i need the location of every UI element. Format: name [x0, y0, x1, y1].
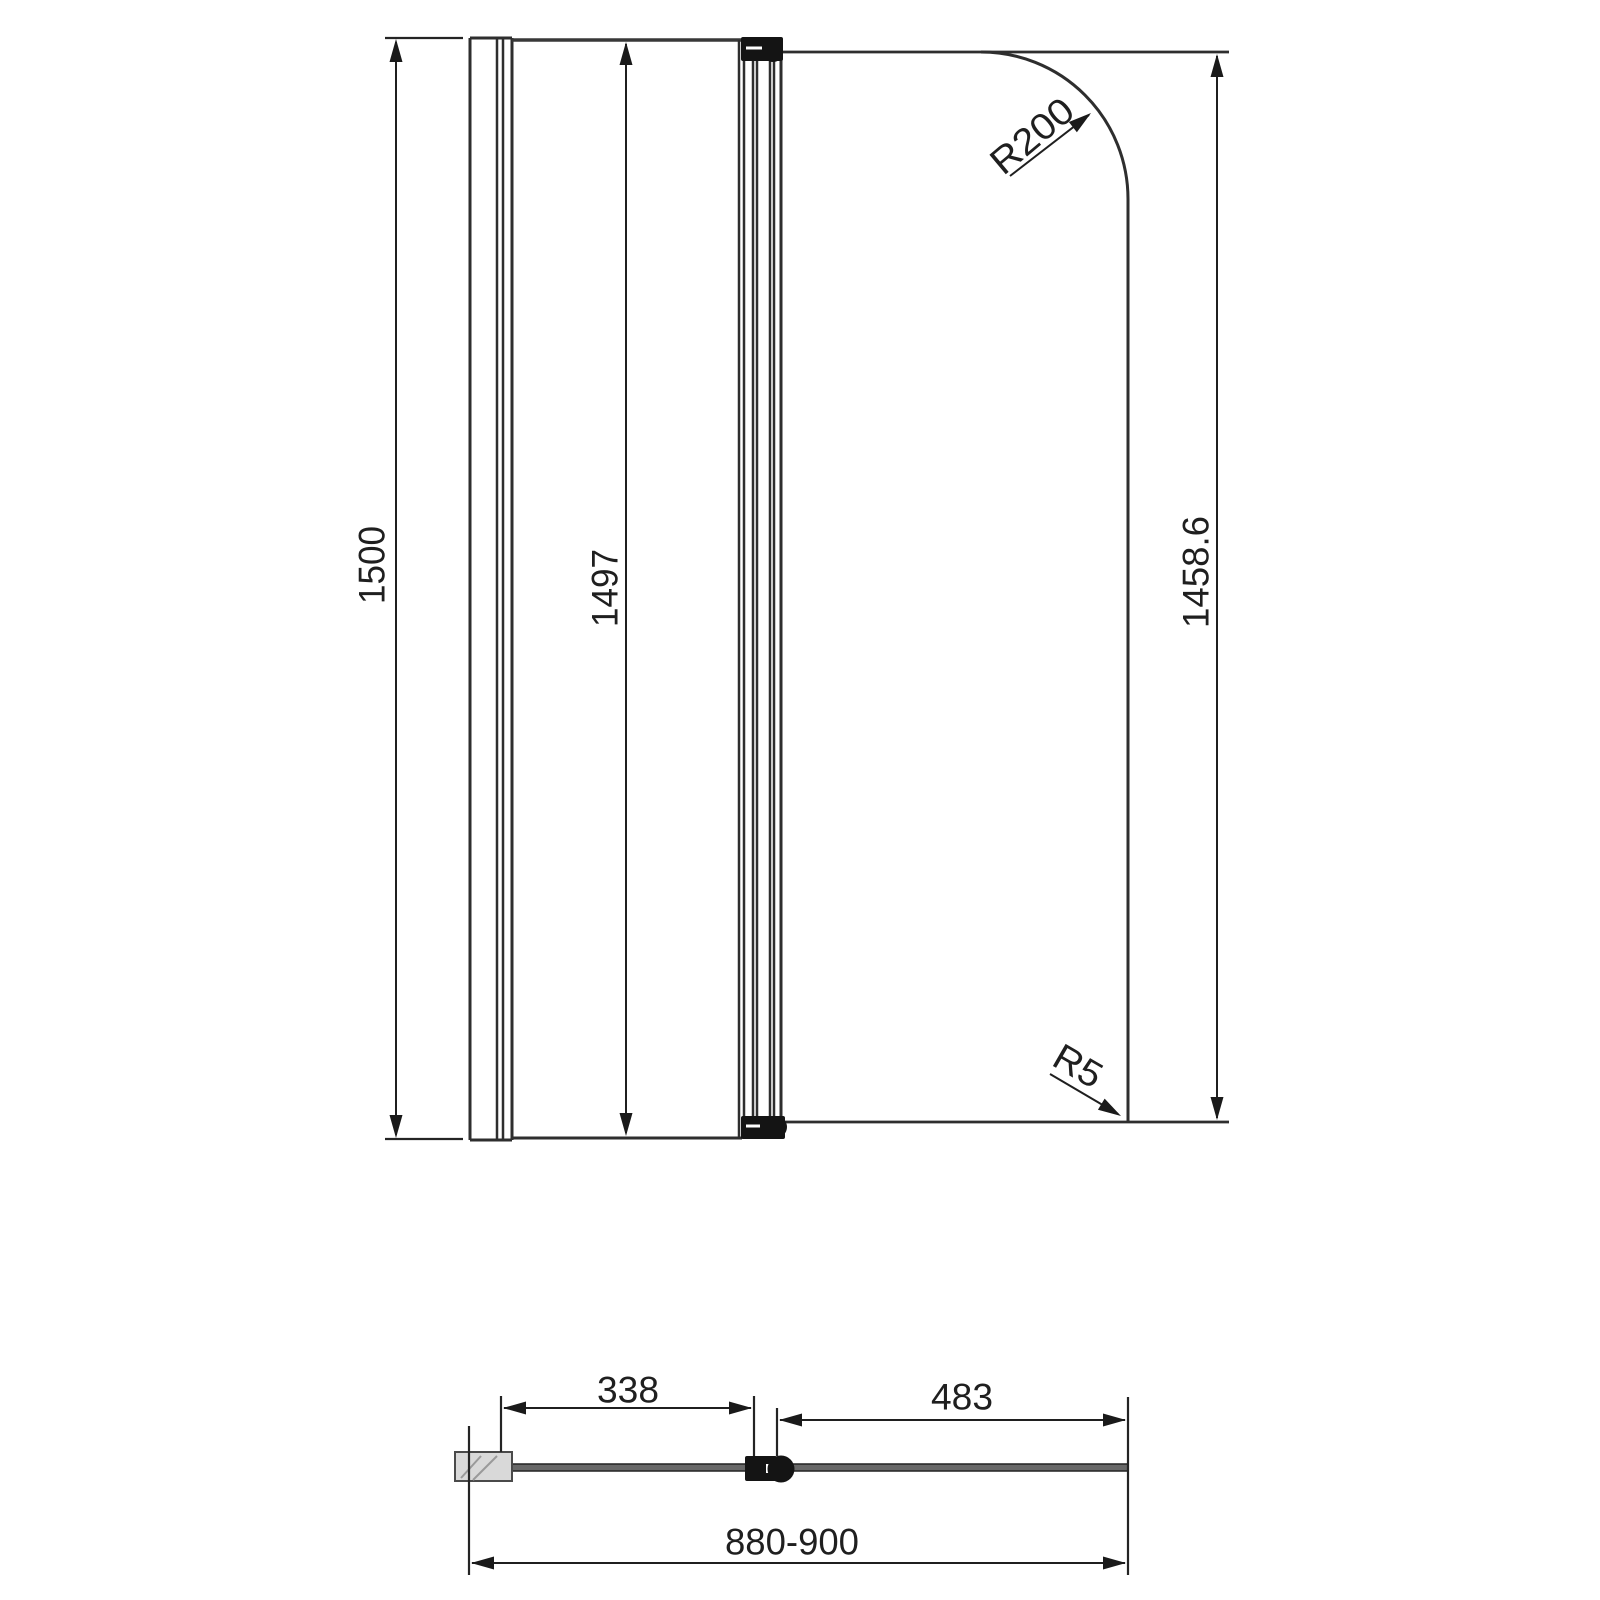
- dim-arrow-right: [1103, 1414, 1126, 1427]
- dim-arrow-left: [471, 1557, 494, 1570]
- dim-arrow-down: [1211, 1097, 1224, 1120]
- dim-arrow-up: [1211, 54, 1224, 77]
- dim-arrow-up: [620, 42, 633, 65]
- bottom-hinge-pivot: [765, 1116, 787, 1138]
- dim-overall-width-label: 880-900: [725, 1522, 859, 1563]
- plan-screen-bar: [512, 1464, 1128, 1471]
- dim-door-glass-height: 1458.6: [1176, 54, 1224, 1120]
- dim-fixed-panel-width-label: 338: [597, 1370, 659, 1411]
- radius-callout-top: R200: [982, 89, 1095, 182]
- dim-door-panel-width-label: 483: [931, 1377, 993, 1418]
- wall-profile: [470, 38, 512, 1140]
- plan-view: 338 483 880-900: [455, 1370, 1128, 1576]
- dim-fixed-panel-height: 1497: [585, 42, 633, 1136]
- bottom-hinge-bracket: [741, 1116, 787, 1139]
- top-hinge-pivot: [763, 42, 783, 62]
- front-elevation-view: 1500 1497 1458.6 R200 R5: [352, 37, 1230, 1140]
- radius-callout-bottom: R5: [1046, 1036, 1124, 1122]
- dim-arrow-right: [1103, 1557, 1126, 1570]
- plan-hinge-pivot: [768, 1456, 795, 1483]
- technical-drawing-page: 1500 1497 1458.6 R200 R5: [0, 0, 1600, 1600]
- dim-arrow-left: [779, 1414, 802, 1427]
- radius-top-label: R200: [982, 89, 1082, 182]
- plan-wall-block: [455, 1452, 512, 1481]
- top-hinge-bracket: [741, 37, 783, 62]
- shower-screen-drawing: 1500 1497 1458.6 R200 R5: [0, 0, 1600, 1600]
- dim-arrow-down: [620, 1113, 633, 1136]
- dim-arrow-right: [729, 1402, 752, 1415]
- dim-arrow-left: [503, 1402, 526, 1415]
- radius-bottom-arrow: [1098, 1099, 1124, 1122]
- dim-overall-height-label: 1500: [352, 526, 393, 604]
- dim-fixed-panel-width: 338: [501, 1370, 754, 1457]
- radius-bottom-label: R5: [1046, 1036, 1110, 1097]
- door-glass-panel: [783, 52, 1229, 1122]
- dim-overall-height: 1500: [352, 38, 464, 1139]
- dim-fixed-panel-height-label: 1497: [585, 549, 626, 627]
- hinge-profile: [739, 40, 781, 1138]
- dim-door-glass-height-label: 1458.6: [1176, 516, 1217, 628]
- dim-arrow-down: [390, 1115, 403, 1138]
- dim-arrow-up: [390, 39, 403, 62]
- dim-door-panel-width: 483: [777, 1377, 1126, 1457]
- plan-hinge: [745, 1456, 795, 1483]
